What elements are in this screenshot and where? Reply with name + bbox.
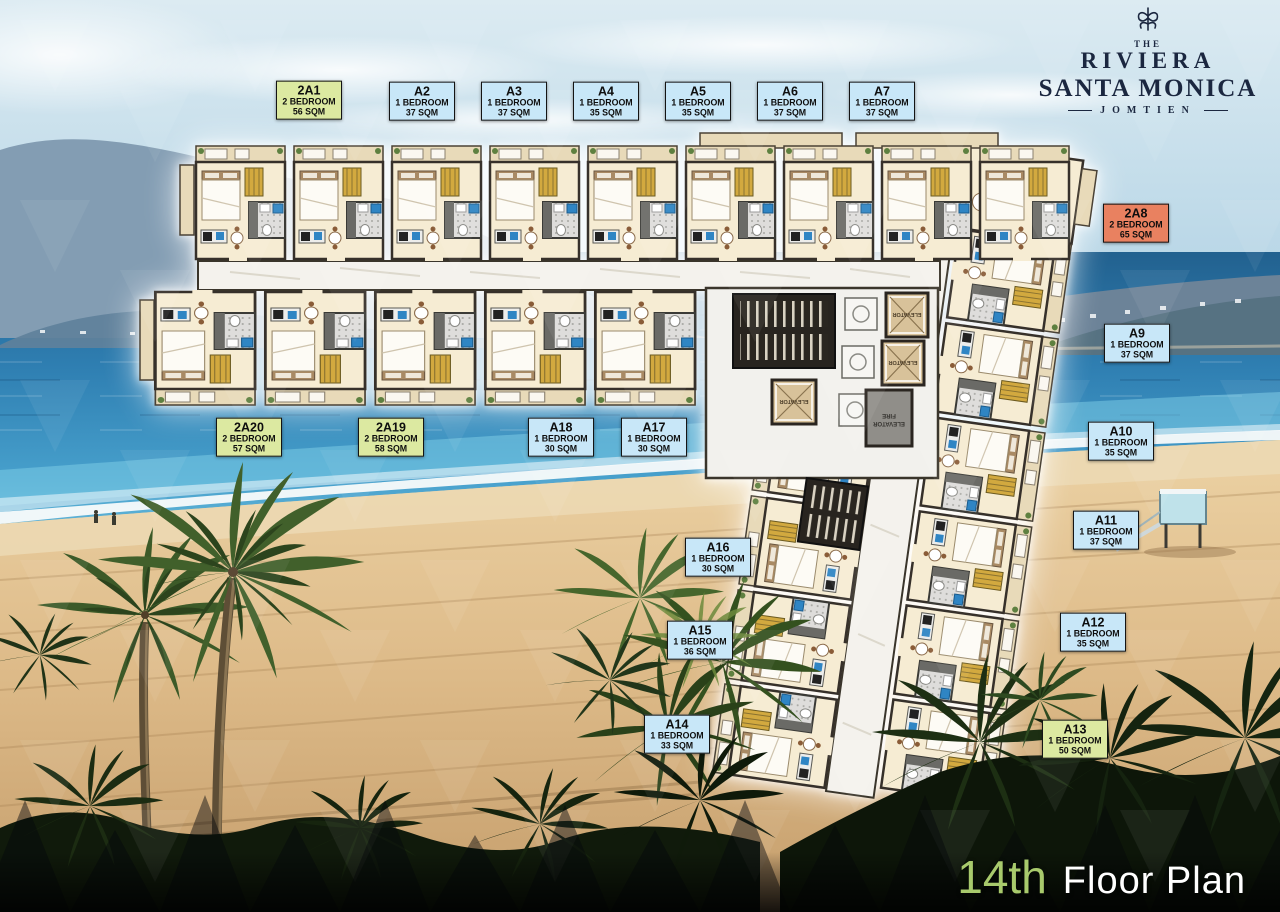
brand-riviera: RIVIERA (1030, 48, 1266, 74)
floor-title: 14th Floor Plan (957, 850, 1246, 904)
brand-logo: THE RIVIERA SANTA MONICA JOMTIEN (1030, 6, 1266, 116)
floor-plan-poster: ELEVATOR ELEVATOR ELEVATOR FIRE (0, 0, 1280, 912)
brand-jomtien: JOMTIEN (1030, 105, 1266, 116)
brand-santa-monica: SANTA MONICA (1030, 75, 1266, 103)
brand-jomtien-text: JOMTIEN (1100, 105, 1196, 116)
divider (1068, 110, 1092, 112)
watermark-overlay (0, 0, 1280, 912)
floor-number: 14th (957, 850, 1047, 904)
floor-plan-text: Floor Plan (1063, 860, 1246, 903)
palm-ornament-icon (1133, 6, 1163, 38)
divider (1204, 110, 1228, 112)
